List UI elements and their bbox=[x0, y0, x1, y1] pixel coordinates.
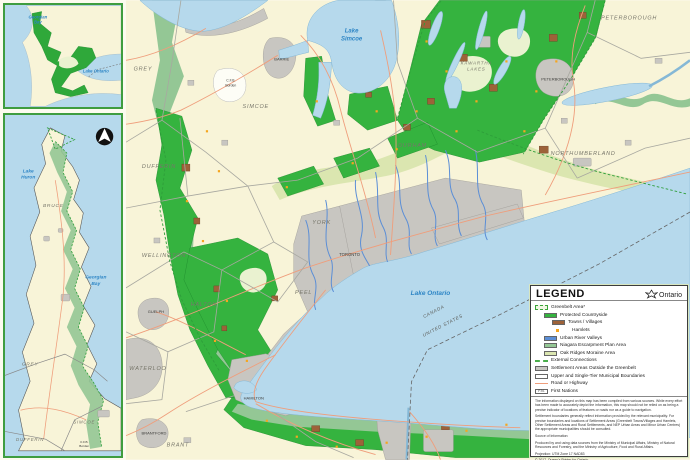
legend-item-label: External Connections bbox=[551, 358, 597, 363]
legend-items: Greenbelt Area* Protected Countryside To… bbox=[531, 301, 687, 396]
brantford-label: BRANTFORD bbox=[142, 431, 167, 436]
durham-label: DURHAM bbox=[398, 143, 427, 149]
greenbelt-area-swatch bbox=[535, 305, 548, 310]
simcoe-inset-label: SIMCOE bbox=[73, 420, 95, 425]
northumberland-label: NORTHUMBERLAND bbox=[551, 151, 616, 157]
legend-item-nep-area: Niagara Escarpment Plan Area bbox=[544, 342, 683, 350]
cfb-borden-label-2: Borden bbox=[225, 83, 236, 87]
protected-countryside-swatch bbox=[544, 313, 557, 318]
lake-ontario-label: Lake Ontario bbox=[411, 290, 451, 297]
legend-item-orm-area: Oak Ridges Moraine Area bbox=[544, 350, 683, 358]
legend-item-municipal-boundaries: Upper and Single-Tier Municipal Boundari… bbox=[535, 372, 683, 380]
inset-escarpment-map: Lake Huron Georgian Bay BRUCE GREY SIMCO… bbox=[3, 113, 123, 458]
nep-area-swatch bbox=[544, 343, 557, 348]
legend-item-protected-countryside: Protected Countryside bbox=[544, 312, 683, 320]
legend-item-label: Oak Ridges Moraine Area bbox=[560, 351, 615, 356]
legend-note-2: Settlement boundaries generally reflect … bbox=[535, 414, 683, 431]
legend-item-towns-villages: Towns / Villages bbox=[552, 319, 683, 327]
overview-georgian-bay-label: Georgian bbox=[29, 14, 48, 19]
toronto-label: TORONTO bbox=[339, 252, 361, 257]
kawartha-lakes-label: KAWARTHA bbox=[461, 60, 493, 65]
barrie-label: BARRIE bbox=[274, 56, 289, 61]
legend-item-label: Hamlets bbox=[572, 328, 590, 333]
lake-simcoe-label-2: Simcoe bbox=[341, 36, 363, 42]
dufferin-inset-label: DUFFERIN bbox=[16, 437, 44, 442]
legend-notes: The information displayed on this map ha… bbox=[531, 396, 687, 460]
peterborough-city-label: PETERBOROUGH bbox=[541, 76, 575, 81]
cfb-borden-label: C.F.B. bbox=[226, 78, 235, 82]
legend-item-label: Niagara Escarpment Plan Area bbox=[560, 343, 626, 348]
inset-overview-map: Georgian Bay Lake Ontario bbox=[3, 3, 123, 109]
ontario-logo: Ontario bbox=[645, 289, 682, 299]
legend-item-label: Upper and Single-Tier Municipal Boundari… bbox=[551, 374, 645, 379]
legend-note-1: The information displayed on this map ha… bbox=[535, 399, 683, 412]
halton-label: HALTON bbox=[191, 302, 218, 308]
inset-overview-canvas: Georgian Bay Lake Ontario bbox=[5, 5, 121, 107]
urban-river-valleys-swatch bbox=[544, 336, 557, 341]
grey-label: GREY bbox=[134, 66, 153, 72]
legend-item-label: First Nations bbox=[551, 389, 578, 394]
legend-item-label: Settlement Areas Outside the Greenbelt bbox=[551, 366, 636, 371]
georgian-bay-label: Georgian bbox=[85, 275, 106, 281]
lake-huron-label-2: Huron bbox=[21, 175, 35, 181]
lake-huron-label: Lake bbox=[23, 168, 34, 174]
settlement-areas-swatch bbox=[535, 366, 548, 371]
greenbelt-map-document: Georgian Bay Lake Ontario bbox=[0, 0, 690, 460]
legend-source-body: Produced by and using data sources from … bbox=[535, 441, 683, 450]
ontario-logo-text: Ontario bbox=[659, 292, 682, 299]
legend-item-first-nations: F.N. First Nations bbox=[535, 388, 683, 396]
legend-item-label: Towns / Villages bbox=[568, 320, 602, 325]
hamlets-swatch bbox=[556, 328, 569, 333]
trillium-icon bbox=[645, 289, 658, 299]
legend-item-external-connections: External Connections bbox=[535, 357, 683, 365]
hamilton-label: HAMILTON bbox=[244, 396, 264, 401]
bruce-label: BRUCE bbox=[43, 203, 64, 209]
legend-header: LEGEND Ontario bbox=[531, 286, 687, 301]
simcoe-label: SIMCOE bbox=[243, 104, 269, 110]
overview-georgian-bay-label-2: Bay bbox=[34, 20, 42, 25]
overview-lake-ontario-label: Lake Ontario bbox=[83, 68, 109, 73]
towns-villages-swatch bbox=[552, 320, 565, 325]
grey-inset-label: GREY bbox=[22, 362, 39, 368]
legend-item-hamlets: Hamlets bbox=[556, 327, 683, 335]
york-label: YORK bbox=[312, 220, 331, 226]
legend-item-urban-river-valleys: Urban River Valleys bbox=[544, 334, 683, 342]
lake-simcoe-label: Lake bbox=[345, 28, 359, 34]
legend-title: LEGEND bbox=[536, 288, 585, 300]
cfb-inset-label-2: Borden bbox=[79, 444, 89, 448]
dufferin-label: DUFFERIN bbox=[142, 164, 176, 170]
legend-item-label: Greenbelt Area* bbox=[551, 305, 585, 310]
legend-projection: Projection: UTM Zone 17 NAD83 bbox=[535, 452, 683, 456]
inset-escarpment-canvas: Lake Huron Georgian Bay BRUCE GREY SIMCO… bbox=[5, 115, 121, 456]
legend-item-greenbelt-area: Greenbelt Area* bbox=[535, 304, 683, 312]
peel-label: PEEL bbox=[295, 290, 312, 296]
kawartha-lakes-label-2: LAKES bbox=[467, 66, 485, 71]
municipal-boundaries-swatch bbox=[535, 374, 548, 379]
legend-item-label: Protected Countryside bbox=[560, 313, 607, 318]
road-highway-swatch bbox=[535, 383, 548, 384]
legend-item-road-highway: Road or Highway bbox=[535, 380, 683, 388]
legend-item-settlement-areas: Settlement Areas Outside the Greenbelt bbox=[535, 365, 683, 373]
waterloo-label: WATERLOO bbox=[129, 366, 166, 372]
external-connections-swatch bbox=[535, 360, 548, 362]
wellington-label: WELLINGTON bbox=[142, 253, 186, 259]
guelph-label: GUELPH bbox=[148, 309, 165, 314]
legend-source-heading: Source of Information: bbox=[535, 434, 683, 438]
orm-area-swatch bbox=[544, 351, 557, 356]
legend-panel: LEGEND Ontario Greenbelt Area* Protected… bbox=[530, 285, 688, 457]
first-nations-swatch: F.N. bbox=[535, 389, 548, 394]
brant-label: BRANT bbox=[167, 443, 190, 449]
north-arrow-icon bbox=[96, 128, 113, 145]
legend-item-label: Urban River Valleys bbox=[560, 336, 602, 341]
legend-item-label: Road or Highway bbox=[551, 381, 588, 386]
peterborough-county-label: PETERBOROUGH bbox=[601, 15, 657, 21]
georgian-bay-label-2: Bay bbox=[91, 281, 100, 287]
